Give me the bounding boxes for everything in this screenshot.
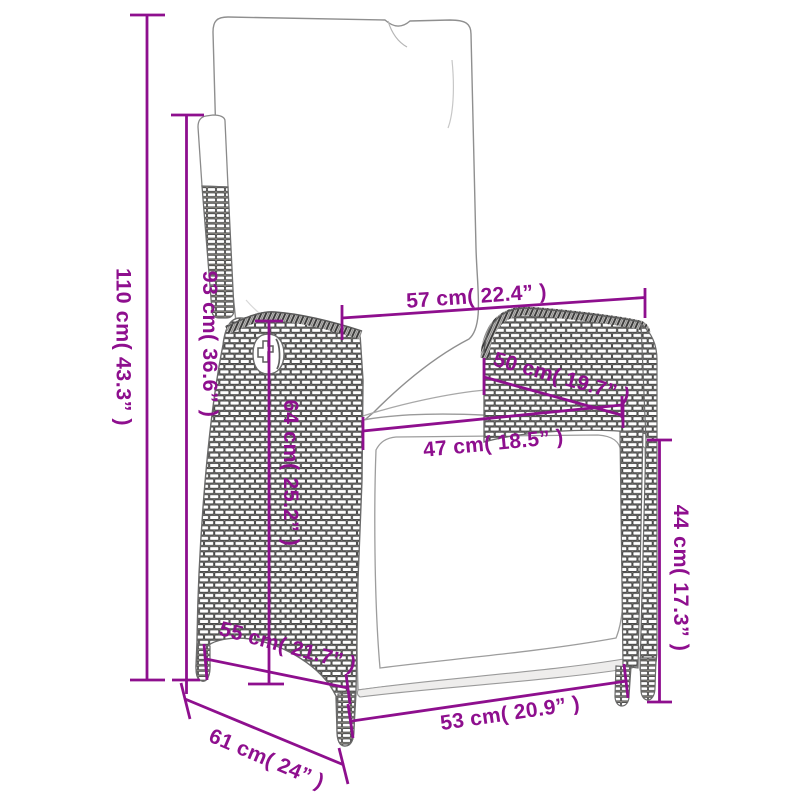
svg-text:110 cm( 43.3” ): 110 cm( 43.3” ) [112,268,136,426]
svg-text:44 cm( 17.3” ): 44 cm( 17.3” ) [669,505,693,652]
svg-text:64 cm( 25.2” ): 64 cm( 25.2” ) [279,400,303,547]
svg-text:93 cm( 36.6” ): 93 cm( 36.6” ) [198,271,222,418]
